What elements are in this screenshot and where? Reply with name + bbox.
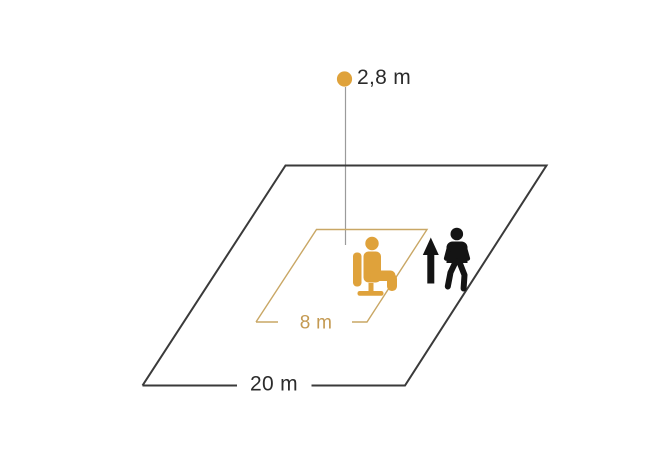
standing-person-leg-back [459, 261, 465, 289]
inner-zone-outline [256, 230, 427, 323]
inner-zone-label: 8 m [300, 313, 333, 335]
outer-zone-label: 20 m [250, 373, 298, 397]
seated-person-shin [387, 274, 397, 291]
standing-person-arm-left [446, 246, 449, 259]
mounting-height-label: 2,8 m [357, 66, 411, 90]
sensor-range-diagram: 2,8 m 8 m 20 m [0, 0, 655, 460]
seated-person-icon [353, 237, 397, 296]
standing-person-icon [446, 228, 468, 289]
standing-person-head [451, 228, 464, 241]
up-arrow-icon [423, 238, 439, 284]
chair-back [353, 253, 362, 287]
standing-person-leg-front [448, 261, 456, 287]
chair-base [358, 291, 384, 296]
seated-person-head [365, 237, 378, 250]
outer-zone-outline [143, 166, 547, 386]
sensor-dot-icon [337, 71, 352, 86]
diagram-shapes [0, 0, 655, 460]
